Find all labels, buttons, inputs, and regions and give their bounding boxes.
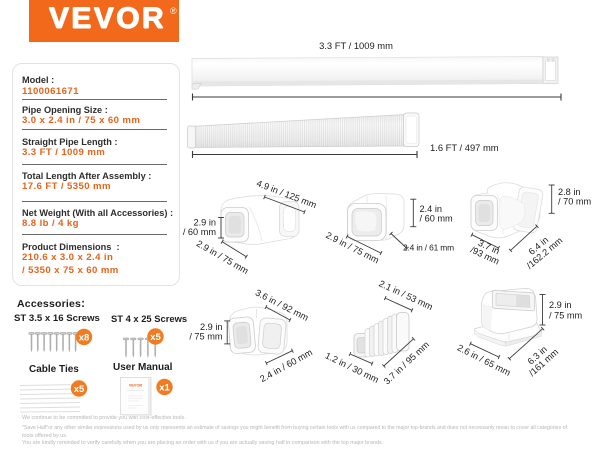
svg-text:2.9 in / 75 mm: 2.9 in / 75 mm <box>195 238 251 276</box>
svg-text:2.6 in / 65 mm: 2.6 in / 65 mm <box>456 343 513 378</box>
svg-text:2.9 in: 2.9 in <box>200 322 222 332</box>
svg-text:x8: x8 <box>79 333 90 344</box>
svg-text:/ 70 mm: / 70 mm <box>558 197 592 207</box>
svg-text:x5: x5 <box>74 384 85 395</box>
svg-text:2.9 in: 2.9 in <box>549 300 571 310</box>
svg-text:2.4 in / 61 mm: 2.4 in / 61 mm <box>403 243 454 253</box>
svg-text:/ 75 mm: / 75 mm <box>189 332 223 342</box>
svg-text:/ 75 mm: / 75 mm <box>549 311 583 321</box>
svg-text:2.8 in: 2.8 in <box>558 187 580 197</box>
svg-text:2.4 in: 2.4 in <box>420 204 442 214</box>
svg-text:/ 60 mm: / 60 mm <box>183 227 217 237</box>
svg-text:VEVOR: VEVOR <box>129 384 143 388</box>
svg-text:3.3 FT / 1009 mm: 3.3 FT / 1009 mm <box>319 40 393 51</box>
svg-text:3.7 in/93 mm: 3.7 in/93 mm <box>469 236 505 267</box>
svg-text:/ 60 mm: / 60 mm <box>420 214 454 224</box>
svg-text:1.6 FT / 497 mm: 1.6 FT / 497 mm <box>430 142 499 153</box>
svg-text:6.4 in/162.2 mm: 6.4 in/162.2 mm <box>519 228 565 271</box>
svg-text:x5: x5 <box>150 332 161 343</box>
svg-text:x1: x1 <box>159 383 170 394</box>
svg-text:2.9 in: 2.9 in <box>194 218 216 228</box>
svg-text:6.3 in/161 mm: 6.3 in/161 mm <box>521 339 561 378</box>
